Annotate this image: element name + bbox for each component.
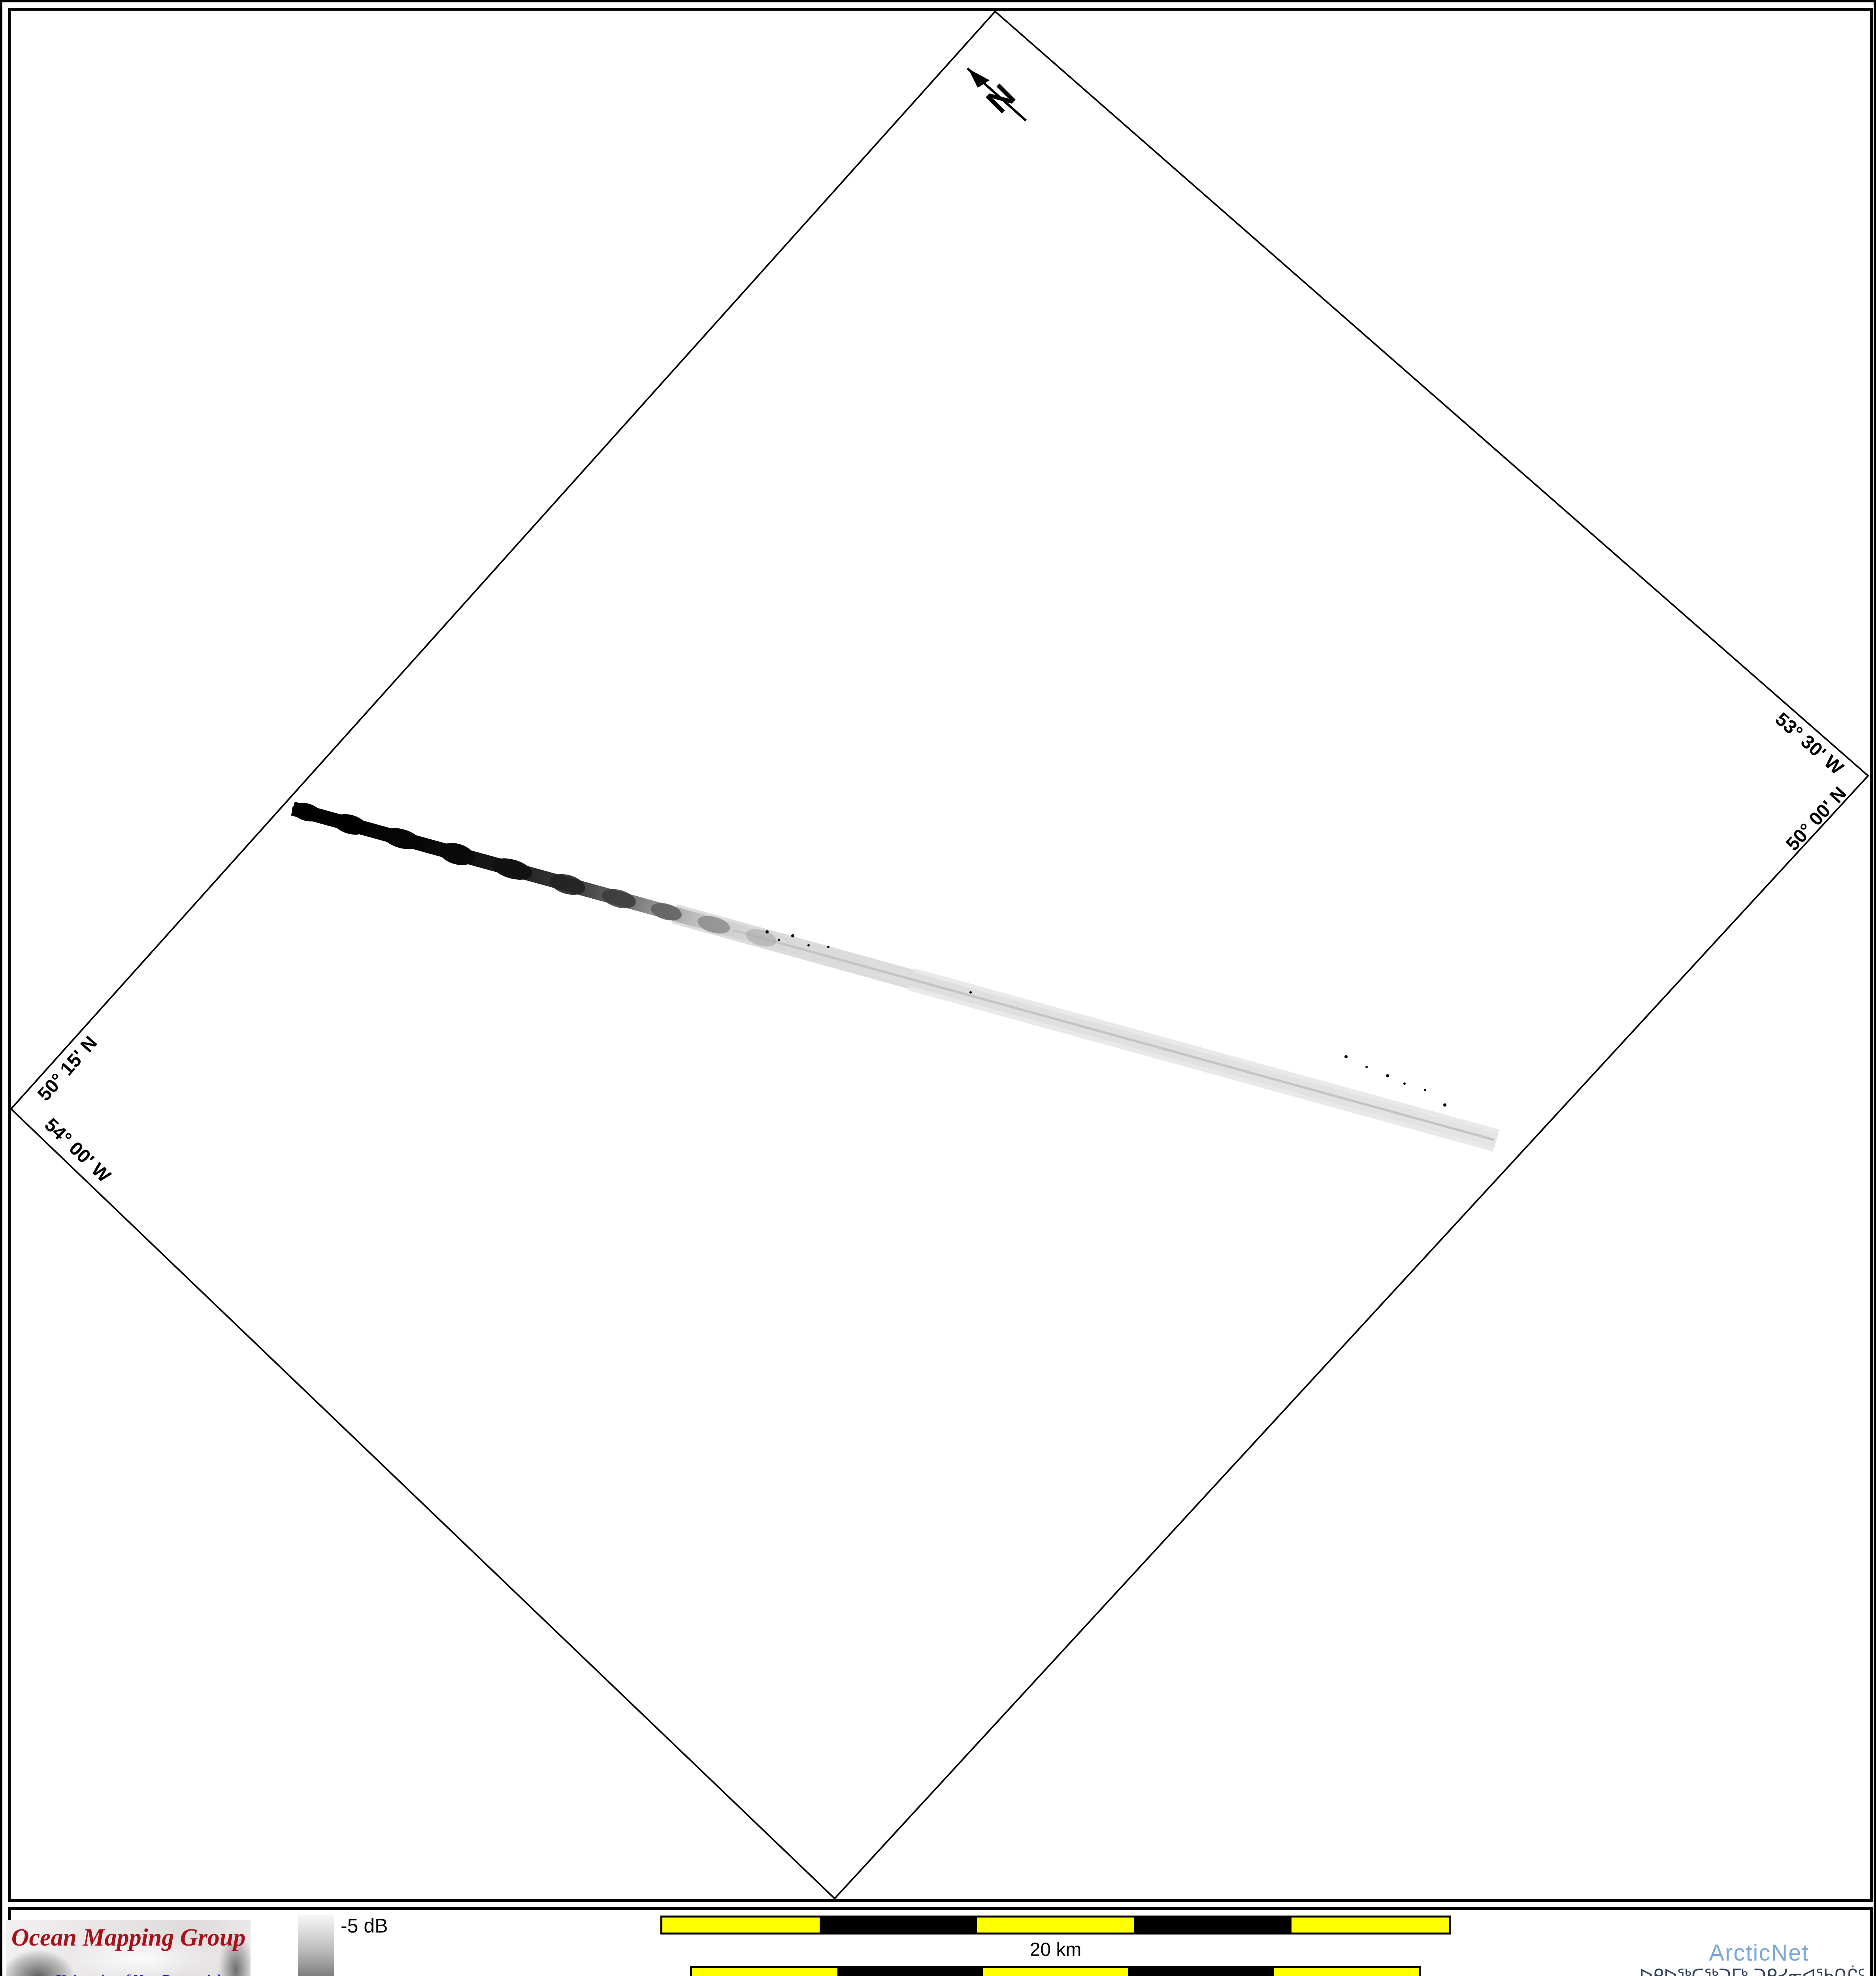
map-canvas: N 53° 30' W 50° 00' N 50° 15' N 54° 00' … <box>2 2 1876 1976</box>
omg-logo-university: University of New Brunswick <box>6 1972 251 1976</box>
arcticnet-logo-inuktitut: ᐅᑭᐅᖅᑕᖅᑐᒥᒃ ᑐᑭᓯᓂᐊᖃᑎᒌᑦ <box>1634 1966 1871 1976</box>
scalebar-km-label: 20 km <box>937 1939 1174 1961</box>
omg-logo: Ocean Mapping Group University of New Br… <box>6 1920 251 1976</box>
sonar-track-nadir-line <box>733 930 1494 1140</box>
scalebar-nm <box>690 1966 1421 1976</box>
scalebar-segment <box>977 1918 1134 1933</box>
scalebar-segment <box>837 1968 983 1976</box>
parallel-label-south: 50° 00' N <box>1782 783 1851 855</box>
backscatter-colorbar <box>298 1915 334 1976</box>
colorbar-max-label: -5 dB <box>341 1914 388 1937</box>
scalebar-segment <box>820 1918 977 1933</box>
scalebar-segment <box>1274 1968 1419 1976</box>
sonar-track <box>290 800 1496 1141</box>
scalebar-segment <box>662 1918 820 1933</box>
arcticnet-logo-title: ArcticNet <box>1660 1940 1858 1966</box>
basemap-sheet: N 53° 30' W 50° 00' N 50° 15' N 54° 00' … <box>0 0 1876 1976</box>
scalebar-segment <box>692 1968 837 1976</box>
omg-logo-title: Ocean Mapping Group <box>6 1924 251 1952</box>
sonar-track-speckles <box>765 930 1446 1107</box>
scalebar-segment <box>1128 1968 1274 1976</box>
parallel-label-north: 50° 15' N <box>34 1032 101 1105</box>
scalebar-km <box>660 1916 1451 1935</box>
meridian-label-west: 54° 00' W <box>40 1114 115 1187</box>
scalebar-segment <box>983 1968 1128 1976</box>
scalebar-segment <box>1134 1918 1292 1933</box>
meridian-label-east: 53° 30' W <box>1771 709 1848 779</box>
north-arrow: N <box>967 68 1026 121</box>
graticule-frame <box>11 11 1868 1899</box>
scalebar-segment <box>1292 1918 1449 1933</box>
